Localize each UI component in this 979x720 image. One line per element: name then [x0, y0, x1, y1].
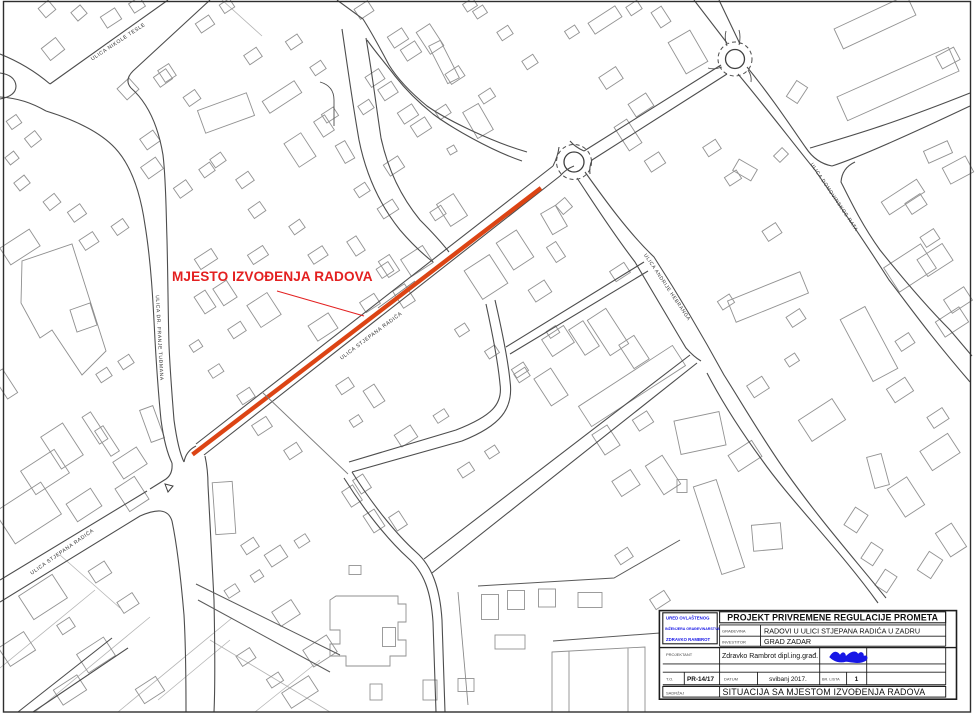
svg-text:MJESTO IZVOĐENJA RADOVA: MJESTO IZVOĐENJA RADOVA — [172, 269, 373, 284]
svg-text:RADOVI U ULICI STJEPANA RADIĆA: RADOVI U ULICI STJEPANA RADIĆA U ZADRU — [764, 626, 920, 635]
svg-text:INVESTITOR: INVESTITOR — [722, 639, 746, 644]
svg-text:ZDRAVKO RAMBROT: ZDRAVKO RAMBROT — [666, 637, 710, 642]
svg-text:SADRŽAJ: SADRŽAJ — [666, 691, 684, 696]
svg-text:GRAĐEVINA: GRAĐEVINA — [722, 628, 746, 633]
svg-text:DATUM: DATUM — [724, 676, 738, 681]
svg-text:GRAD ZADAR: GRAD ZADAR — [764, 637, 811, 646]
svg-text:URED OVLAŠTENOG: URED OVLAŠTENOG — [666, 616, 710, 621]
svg-text:SITUACIJA SA MJESTOM IZVOĐENJA: SITUACIJA SA MJESTOM IZVOĐENJA RADOVA — [723, 687, 926, 697]
svg-text:svibanj 2017.: svibanj 2017. — [769, 676, 807, 683]
svg-text:BR. LISTA: BR. LISTA — [822, 677, 840, 681]
svg-text:PROJEKTANT: PROJEKTANT — [666, 652, 693, 657]
svg-text:PR-14/17: PR-14/17 — [687, 676, 714, 683]
svg-text:T.O.: T.O. — [666, 676, 673, 681]
svg-text:1: 1 — [855, 676, 859, 683]
svg-text:PROJEKT PRIVREMENE REGULACIJE: PROJEKT PRIVREMENE REGULACIJE PROMETA — [727, 612, 938, 622]
svg-text:INŽENJERA GRAĐEVINARSTVA: INŽENJERA GRAĐEVINARSTVA — [665, 626, 720, 631]
svg-text:Zdravko Rambrot dipl.ing.građ.: Zdravko Rambrot dipl.ing.građ. — [722, 653, 818, 660]
